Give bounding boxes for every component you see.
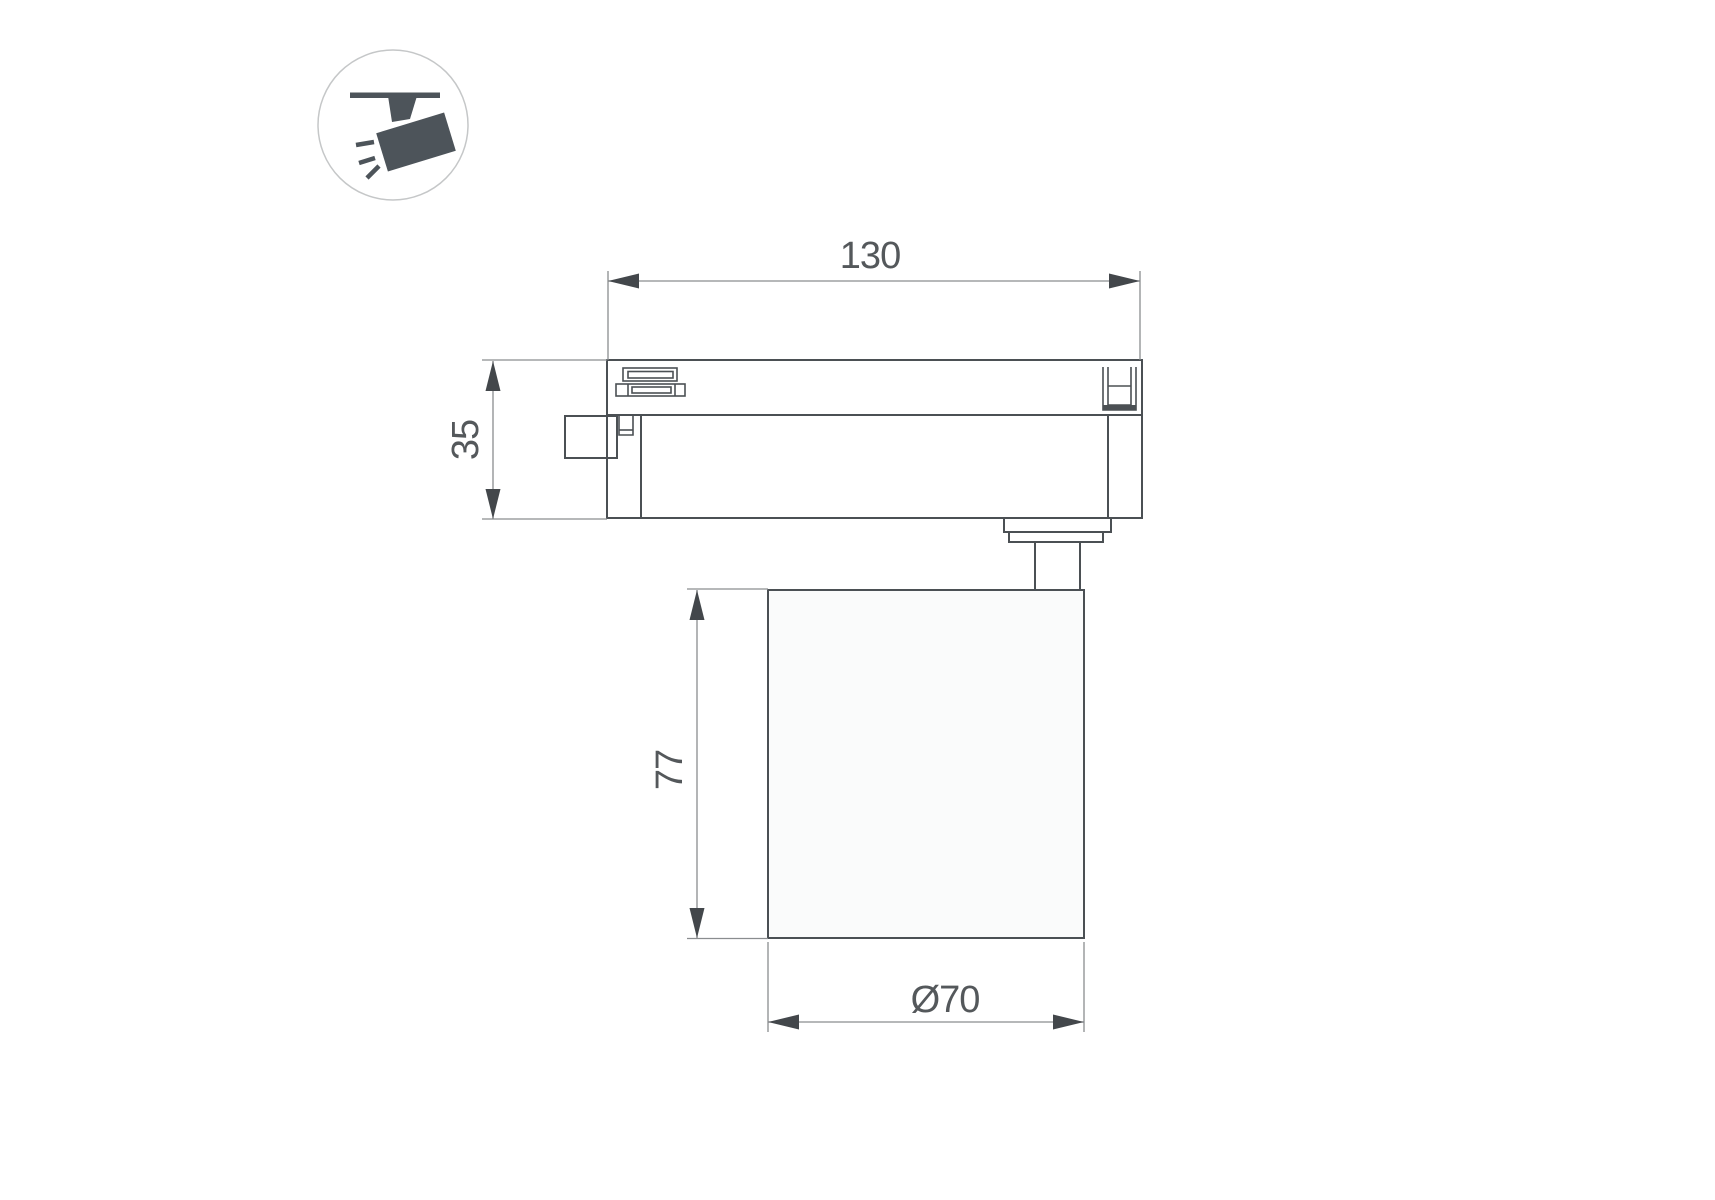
lever-catch — [619, 415, 633, 435]
swivel-stem — [1035, 542, 1080, 590]
dimension-77: 77 — [649, 589, 768, 939]
dim-body-height-label: 77 — [649, 750, 691, 790]
contact-slot — [623, 368, 677, 381]
arrow-right-icon — [1053, 1015, 1084, 1030]
arrow-left-icon — [768, 1015, 799, 1030]
dim-width-label: 130 — [840, 235, 900, 277]
adapter-gear-body — [607, 415, 1142, 518]
contact-slot-inner — [628, 372, 673, 379]
swivel-flange-lower — [1009, 532, 1103, 542]
arrow-down-icon — [690, 908, 705, 938]
locking-lever — [565, 416, 617, 458]
track-light-icon — [318, 50, 468, 200]
luminaire-dimension-drawing: 130 35 77 Ø70 — [0, 0, 1715, 1200]
arrow-up-icon — [690, 590, 705, 620]
arrow-left-icon — [608, 274, 639, 289]
dimension-70: Ø70 — [768, 942, 1084, 1032]
light-ray-icon — [356, 142, 374, 145]
dim-height-label: 35 — [445, 420, 487, 460]
technical-drawing-page: 130 35 77 Ø70 — [0, 0, 1715, 1200]
arrow-down-icon — [486, 489, 501, 519]
dimension-130: 130 — [608, 235, 1140, 360]
arrow-up-icon — [486, 361, 501, 391]
track-adapter-outline — [565, 360, 1142, 590]
latch-bracket-base — [1103, 405, 1136, 410]
adapter-rail-section — [607, 360, 1142, 415]
swivel-flange-upper — [1004, 518, 1111, 532]
dimension-35: 35 — [445, 360, 607, 519]
contact-slot-inner — [632, 387, 671, 393]
arrow-right-icon — [1109, 274, 1140, 289]
dim-body-diameter-label: Ø70 — [911, 979, 980, 1021]
lamp-body — [768, 590, 1084, 938]
